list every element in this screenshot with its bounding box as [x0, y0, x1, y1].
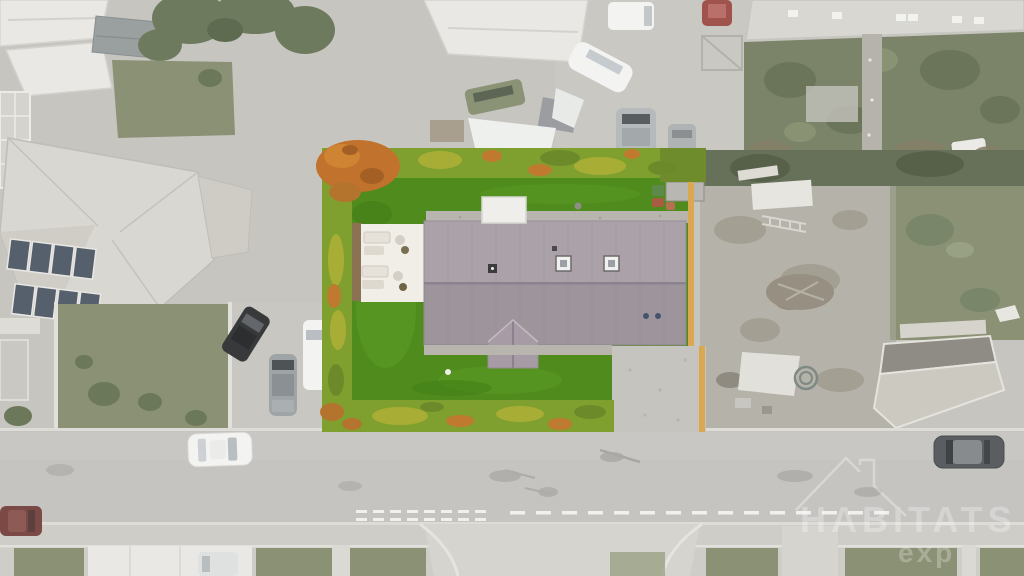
front-lawn [706, 548, 778, 576]
white-annex [482, 197, 526, 223]
bush [75, 355, 93, 369]
parked-car-maroon [0, 506, 42, 536]
tree-canopy [275, 6, 335, 54]
white-boards [751, 180, 813, 210]
tree-canopy [207, 18, 243, 42]
front-lawn [980, 548, 1024, 576]
skylight [974, 17, 984, 24]
white-roof-1 [0, 0, 108, 46]
garden-texture [784, 122, 816, 142]
van-white-top [608, 2, 654, 30]
watermark-line1: HABITATS [800, 499, 1017, 540]
garden-wall [228, 302, 232, 428]
garden-path [862, 34, 882, 156]
hedge-bottom [322, 400, 614, 432]
tree-canopy [138, 29, 182, 61]
skylight [952, 16, 962, 23]
bush [88, 382, 120, 406]
green-bin [652, 185, 664, 196]
roof-dot [643, 313, 649, 319]
red-bin [666, 202, 675, 210]
garden-texture [980, 96, 1020, 124]
aerial-photo: HABITATS exp [0, 0, 1024, 576]
parked-van-bottom [198, 552, 238, 576]
wood-pile [430, 120, 464, 142]
dirt-strip [352, 223, 362, 301]
road-car-gray [934, 436, 1004, 468]
white-sheet [738, 352, 800, 396]
bush [138, 393, 162, 411]
lawn-shadow [412, 380, 492, 396]
bush [198, 69, 222, 87]
autumn-tree [316, 140, 400, 192]
yellow-fence [699, 346, 705, 432]
aerial-photo-stage: HABITATS exp [0, 0, 1024, 576]
roof-dot [655, 313, 661, 319]
property [316, 140, 706, 432]
concrete-pad [555, 0, 765, 168]
car-red-top [702, 0, 732, 26]
skylight [896, 14, 906, 21]
yard-structure [0, 340, 28, 400]
garden-shed [666, 182, 704, 201]
garden-wall [54, 302, 58, 428]
autumn-tree [329, 182, 361, 202]
house [424, 197, 686, 368]
bush [185, 410, 207, 426]
roof-vent [552, 246, 557, 251]
front-lawn-small [610, 552, 665, 576]
bush [4, 406, 32, 426]
right-yard [700, 150, 1024, 432]
garden-pad [806, 86, 858, 122]
hedge-texture [896, 151, 964, 177]
roof-ridge [424, 282, 686, 285]
road-band [0, 432, 1024, 460]
front-lawn [256, 548, 332, 576]
garden-texture [920, 50, 980, 90]
lawn-white-dot [445, 369, 451, 375]
skylight [832, 12, 842, 19]
yard-divider [890, 186, 896, 340]
red-bin [652, 198, 664, 207]
skylight [908, 14, 918, 21]
watermark-line2: exp [898, 537, 955, 568]
skylight [788, 10, 798, 17]
yellow-fence [688, 182, 694, 346]
yard-structure [0, 318, 40, 334]
top-right-garden [744, 0, 1024, 166]
manhole [575, 203, 582, 210]
front-lawn [14, 548, 84, 576]
gravel-border [424, 345, 612, 355]
front-lawn [350, 548, 426, 576]
wall-pillar [332, 545, 350, 576]
road-car-white [187, 432, 252, 467]
parked-car-silver [269, 354, 297, 416]
wall-pillar [962, 545, 976, 576]
